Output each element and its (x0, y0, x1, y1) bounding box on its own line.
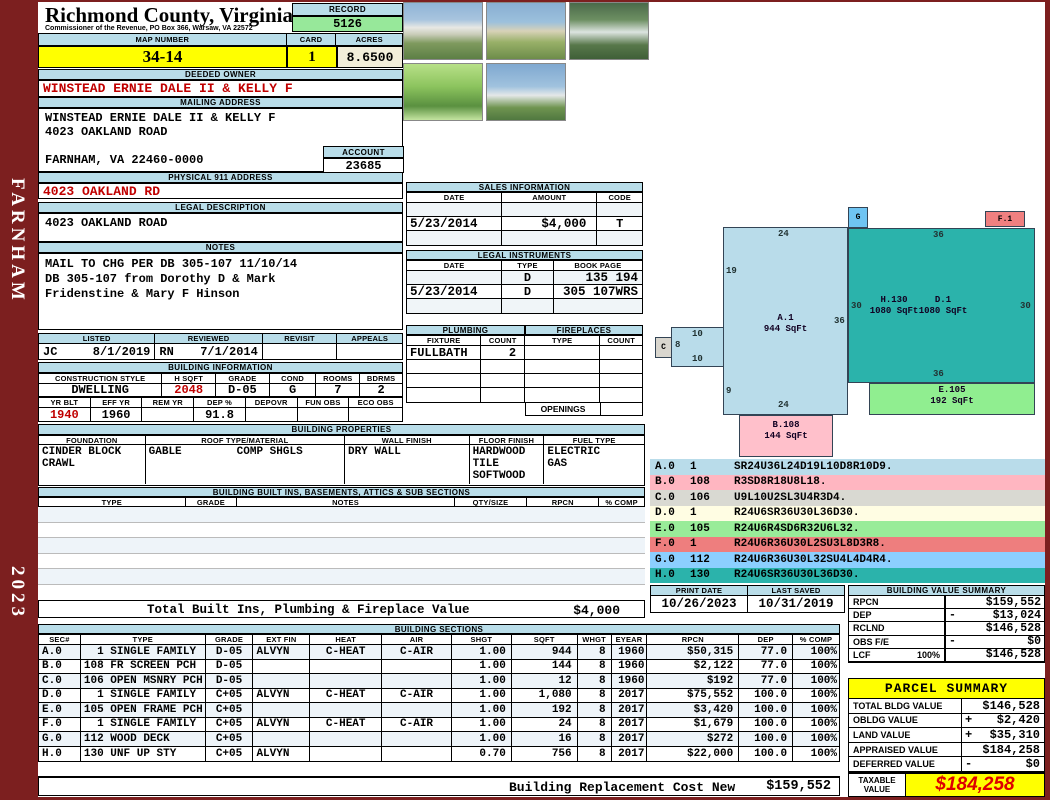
built-in-notes-label: NOTES (237, 498, 454, 506)
fireplace-count-value (600, 346, 642, 359)
dim-h-bottom: 36 (933, 369, 944, 379)
fixture-value (407, 374, 481, 387)
section-dep: 100.0 (739, 689, 793, 703)
sales-information-title: SALES INFORMATION (406, 182, 643, 192)
built-in-type-label: TYPE (39, 498, 186, 506)
foundation-label: FOUNDATION (39, 436, 146, 444)
legend-code: C.0 (650, 492, 690, 504)
section-shgt: 1.00 (452, 689, 512, 703)
section-id: F.0 (39, 718, 81, 732)
value-summary-amount: $159,552 (960, 596, 1044, 609)
section-shgt: 0.70 (452, 747, 512, 762)
acres-label: ACRES (336, 34, 402, 45)
remyr-label: REM YR (142, 398, 194, 407)
built-in-rpcn-label: RPCN (527, 498, 599, 506)
parcel-summary-label: TOTAL BLDG VALUE (849, 699, 961, 713)
replacement-cost-value: $159,552 (766, 779, 831, 794)
legend-vector: R24U6R36U30L32SU4L4D4R4. (734, 554, 1045, 566)
ecoobs-label: ECO OBS (349, 398, 402, 407)
building-info-header-2: YR BLT EFF YR REM YR DEP % DEPOVR FUN OB… (38, 397, 403, 408)
parcel-summary-amount: $184,258 (976, 743, 1044, 757)
section-shgt: 1.00 (452, 660, 512, 674)
built-ins-title: BUILDING BUILT INS, BASEMENTS, ATTICS & … (38, 487, 645, 497)
section-type: 1 SINGLE FAMILY (81, 718, 206, 732)
hsqft-value: 2048 (162, 384, 216, 396)
effyr-value: 1960 (91, 408, 143, 421)
fireplace-type-value (525, 360, 600, 373)
dates-header: PRINT DATE LAST SAVED (650, 585, 845, 596)
funobs-value (298, 408, 350, 421)
property-photo-1 (403, 2, 483, 60)
section-extfin: ALVYN (253, 645, 310, 659)
section-dep: 100.0 (739, 718, 793, 732)
parcel-summary-sign: - (962, 757, 976, 771)
section-sqft: 1,080 (512, 689, 578, 703)
parcel-summary-row: APPRAISED VALUE $184,258 (849, 743, 1044, 758)
section-sqft: 24 (512, 718, 578, 732)
section-id: H.0 (39, 747, 81, 762)
parcel-summary-row: OBLDG VALUE +$2,420 (849, 714, 1044, 729)
dim-notch-top: 10 (692, 329, 703, 339)
section-extfin (253, 703, 310, 717)
openings-label: OPENINGS (525, 402, 601, 416)
section-heat (310, 747, 382, 762)
cond-label: COND (270, 374, 317, 383)
sales-date-label: DATE (407, 193, 502, 202)
legal-instrument-row: 5/23/2014 D 305 107WRS (407, 285, 642, 299)
legend-code: F.0 (650, 538, 690, 550)
section-heat (310, 732, 382, 746)
section-heat (310, 703, 382, 717)
fireplace-count-value (600, 374, 642, 387)
section-comp: 100% (793, 674, 839, 688)
legend-row: H.0 130 R24U6SR36U30L36D30. (650, 568, 1045, 584)
fireplace-count-label: COUNT (600, 336, 642, 345)
section-whgt: 8 (578, 689, 612, 703)
section-eyear: 2017 (612, 703, 648, 717)
dim-h-top: 36 (933, 230, 944, 240)
construction-style-value: DWELLING (39, 384, 162, 396)
notes-line-3: Fridenstine & Mary F Hinson (45, 287, 239, 301)
fixture-value (407, 388, 481, 402)
section-rpcn: $3,420 (647, 703, 739, 717)
section-heat: C-HEAT (310, 718, 382, 732)
legend-row: F.0 1 R24U6R36U30L2SU3L8D3R8. (650, 537, 1045, 553)
instrument-book-page: 305 107WRS (554, 285, 642, 298)
sale-code: T (597, 217, 642, 230)
legend-code: G.0 (650, 554, 690, 566)
building-section-row: H.0 130 UNF UP STY C+05 ALVYN 0.70 756 8… (39, 747, 839, 762)
plumbing-row (407, 374, 642, 388)
yrblt-value: 1940 (39, 408, 91, 421)
value-summary-row: DEP -$13,024 (849, 609, 1044, 622)
revisit-label: REVISIT (263, 334, 338, 343)
section-whgt: 8 (578, 660, 612, 674)
parcel-summary-sign: + (962, 713, 976, 727)
section-dep: 77.0 (739, 674, 793, 688)
built-in-comp-label: % COMP (599, 498, 644, 506)
legal-description-block: 4023 OAKLAND ROAD (38, 213, 403, 242)
building-value-summary-rows: RPCN $159,552 DEP -$13,024 RCLND $146,52… (848, 596, 1045, 663)
parcel-summary-rows: TOTAL BLDG VALUE $146,528 OBLDG VALUE +$… (848, 699, 1045, 773)
grade-value: D-05 (216, 384, 270, 396)
value-summary-label: RPCN (853, 597, 879, 607)
section-dep: 100.0 (739, 703, 793, 717)
instrument-book-label: BOOK PAGE (554, 261, 642, 270)
parcel-summary-amount: $35,310 (976, 728, 1044, 742)
tax-year-sidebar: 2023 (6, 566, 28, 646)
legend-vector: R24U6R4SD6R32U6L32. (734, 523, 1045, 535)
parcel-summary-label: OBLDG VALUE (849, 714, 961, 728)
sketch-label-d: D.11080 SqFt (903, 295, 983, 317)
value-summary-label: DEP (853, 610, 872, 620)
parcel-summary-label: DEFERRED VALUE (849, 757, 961, 771)
appeals-value (337, 344, 402, 359)
plumbing-title: PLUMBING (406, 325, 525, 335)
legend-qty: 130 (690, 569, 734, 581)
instrument-type-label: TYPE (502, 261, 554, 270)
section-grade: C+05 (206, 703, 254, 717)
sale-amount (502, 231, 597, 245)
building-info-values-1: DWELLING 2048 D-05 G 7 2 (38, 384, 403, 397)
legend-vector: R24U6SR36U30L36D30. (734, 507, 1045, 519)
openings-row: OPENINGS (525, 402, 643, 416)
sketch-label-b: B.108144 SqFt (739, 420, 833, 442)
sales-row (407, 231, 642, 245)
section-type: 105 OPEN FRAME PCH (81, 703, 206, 717)
cond-value: G (270, 384, 317, 396)
sales-header: DATE AMOUNT CODE (406, 192, 643, 203)
dim-notch-bottom: 10 (692, 354, 703, 364)
built-ins-empty-rows (38, 507, 645, 600)
value-summary-sign: - (946, 635, 960, 648)
section-eyear: 1960 (612, 674, 648, 688)
map-card-acres-values: 34-14 1 8.6500 (38, 46, 403, 68)
remyr-value (142, 408, 194, 421)
fixture-value: FULLBATH (407, 346, 481, 359)
parcel-summary-label: APPRAISED VALUE (849, 743, 961, 757)
deeded-owner-value: WINSTEAD ERNIE DALE II & KELLY F (38, 80, 403, 97)
value-summary-row: RCLND $146,528 (849, 622, 1044, 635)
legend-row: C.0 106 U9L10U2SL3U4R3D4. (650, 490, 1045, 506)
section-dep: 77.0 (739, 645, 793, 659)
whgt-label: WHGT (578, 635, 612, 644)
legal-instruments-header: DATE TYPE BOOK PAGE (406, 260, 643, 271)
value-summary-row: LCF100% $146,528 (849, 649, 1044, 662)
listed-date: 8/1/2019 (93, 345, 151, 359)
openings-value (601, 402, 643, 416)
account-label: ACCOUNT (323, 146, 404, 158)
section-grade: C+05 (206, 747, 254, 762)
fireplace-count-value (600, 388, 642, 402)
rooms-label: ROOMS (316, 374, 360, 383)
parcel-summary-amount: $0 (976, 757, 1044, 771)
print-date-label: PRINT DATE (651, 586, 748, 595)
section-shgt: 1.00 (452, 703, 512, 717)
value-summary-label: LCF (853, 650, 871, 660)
building-section-row: C.0 106 OPEN MSNRY PCH D-05 1.00 12 8 19… (39, 674, 839, 689)
section-shgt: 1.00 (452, 718, 512, 732)
record-label: RECORD (292, 3, 403, 16)
value-summary-amount: $13,024 (960, 609, 1044, 622)
value-summary-amount: $146,528 (960, 622, 1044, 635)
section-id: C.0 (39, 674, 81, 688)
property-record-card: FARNHAM 2023 Richmond County, Virginia C… (0, 0, 1050, 800)
section-eyear: 2017 (612, 689, 648, 703)
section-whgt: 8 (578, 703, 612, 717)
value-summary-pct: 100% (917, 650, 940, 660)
effyr-label: EFF YR (91, 398, 143, 407)
section-id: G.0 (39, 732, 81, 746)
plumbing-row (407, 360, 642, 374)
legend-vector: SR24U36L24D19L10D8R10D9. (734, 461, 1045, 473)
section-type: 1 SINGLE FAMILY (81, 689, 206, 703)
section-whgt: 8 (578, 645, 612, 659)
building-info-values-2: 1940 1960 91.8 (38, 408, 403, 422)
roof-label: ROOF TYPE/MATERIAL (146, 436, 345, 444)
last-saved-value: 10/31/2019 (748, 596, 844, 612)
record-value: 5126 (292, 16, 403, 32)
sale-amount: $4,000 (502, 217, 597, 230)
parcel-summary-sign: + (962, 728, 976, 742)
fireplace-count-value (600, 360, 642, 373)
type-label: TYPE (81, 635, 206, 644)
map-number-label: MAP NUMBER (39, 34, 287, 45)
section-comp: 100% (793, 732, 839, 746)
instrument-date-label: DATE (407, 261, 502, 270)
fireplace-type-value (525, 388, 600, 402)
section-extfin (253, 660, 310, 674)
print-date-value: 10/26/2023 (651, 596, 748, 612)
parcel-summary-title: PARCEL SUMMARY (848, 678, 1045, 699)
property-photo-3 (569, 2, 649, 60)
section-sqft: 12 (512, 674, 578, 688)
section-extfin: ALVYN (253, 718, 310, 732)
property-photo-2 (486, 2, 566, 60)
building-section-row: A.0 1 SINGLE FAMILY D-05 ALVYN C-HEAT C-… (39, 645, 839, 660)
fixture-count-value (481, 388, 525, 402)
section-comp: 100% (793, 747, 839, 762)
building-section-row: G.0 112 WOOD DECK C+05 1.00 16 8 2017 $2… (39, 732, 839, 747)
section-air (382, 703, 452, 717)
dim-h-left: 30 (851, 301, 862, 311)
dim-a-bottom: 24 (778, 400, 789, 410)
sqft-label: SQFT (512, 635, 578, 644)
section-grade: D-05 (206, 645, 254, 659)
sketch-section-c: C (655, 337, 672, 358)
instrument-date: 5/23/2014 (407, 285, 502, 298)
section-sqft: 192 (512, 703, 578, 717)
air-label: AIR (382, 635, 452, 644)
replacement-cost-label: Building Replacement Cost New (509, 780, 735, 795)
fixture-value (407, 360, 481, 373)
instrument-book-page: 135 194 (554, 271, 642, 284)
value-summary-sign: - (946, 609, 960, 622)
value-summary-label: RCLND (853, 623, 885, 633)
grade-col-label: GRADE (206, 635, 254, 644)
fixture-count-value (481, 374, 525, 387)
dep-col-label: DEP (739, 635, 793, 644)
dim-notch-left: 8 (675, 340, 680, 350)
section-rpcn: $1,679 (647, 718, 739, 732)
reviewed-label: REVIEWED (155, 334, 262, 343)
ecoobs-value (349, 408, 402, 421)
property-photo-5 (486, 63, 566, 121)
section-shgt: 1.00 (452, 674, 512, 688)
built-in-qty-label: QTY/SIZE (455, 498, 528, 506)
section-type: 112 WOOD DECK (81, 732, 206, 746)
built-ins-header: TYPE GRADE NOTES QTY/SIZE RPCN % COMP (38, 497, 645, 507)
section-heat (310, 674, 382, 688)
value-summary-row: OBS F/E -$0 (849, 636, 1044, 649)
sales-amount-label: AMOUNT (502, 193, 597, 202)
built-ins-total-row: Total Built Ins, Plumbing & Fireplace Va… (38, 600, 645, 618)
legend-row: A.0 1 SR24U36L24D19L10D8R10D9. (650, 459, 1045, 475)
legend-qty: 1 (690, 507, 734, 519)
section-whgt: 8 (578, 732, 612, 746)
last-saved-label: LAST SAVED (748, 586, 844, 595)
physical-address-value: 4023 OAKLAND RD (38, 183, 403, 199)
deeded-owner-label: DEEDED OWNER (38, 69, 403, 80)
notes-line-2: DB 305-107 from Dorothy D & Mark (45, 272, 275, 286)
legend-qty: 1 (690, 538, 734, 550)
fuel-type-label: FUEL TYPE (544, 436, 644, 444)
section-comp: 100% (793, 689, 839, 703)
section-rpcn: $75,552 (647, 689, 739, 703)
dim-a-left: 19 (726, 266, 737, 276)
grade-label: GRADE (216, 374, 270, 383)
construction-style-label: CONSTRUCTION STYLE (39, 374, 162, 383)
map-card-acres-header: MAP NUMBER CARD ACRES (38, 33, 403, 46)
mailing-line-1: WINSTEAD ERNIE DALE II & KELLY F (45, 111, 275, 125)
legal-instrument-row (407, 299, 642, 313)
value-summary-amount: $0 (960, 635, 1044, 648)
fixture-count-value (481, 360, 525, 373)
section-whgt: 8 (578, 747, 612, 762)
heat-label: HEAT (310, 635, 382, 644)
section-heat: C-HEAT (310, 645, 382, 659)
account-value: 23685 (323, 158, 404, 173)
instrument-book-page (554, 299, 642, 313)
dim-a-right: 36 (834, 316, 845, 326)
sale-amount (502, 203, 597, 216)
fireplace-type-value (525, 374, 600, 387)
section-grade: D-05 (206, 660, 254, 674)
section-air: C-AIR (382, 645, 452, 659)
section-dep: 77.0 (739, 660, 793, 674)
card-label: CARD (287, 34, 337, 45)
section-id: B.0 (39, 660, 81, 674)
legend-qty: 105 (690, 523, 734, 535)
mailing-address-label: MAILING ADDRESS (38, 97, 403, 108)
value-summary-amount: $146,528 (960, 648, 1044, 661)
reviewed-by: RN (159, 345, 173, 359)
sketch-label-e: E.105192 SqFt (869, 385, 1035, 407)
fireplaces-title: FIREPLACES (525, 325, 643, 335)
section-rpcn: $272 (647, 732, 739, 746)
eyear-label: EYEAR (612, 635, 648, 644)
legal-description-value: 4023 OAKLAND ROAD (45, 216, 167, 230)
funobs-label: FUN OBS (298, 398, 350, 407)
fixture-count-value: 2 (481, 346, 525, 359)
legend-vector: R24U6SR36U30L36D30. (734, 569, 1045, 581)
depovr-label: DEPOVR (246, 398, 298, 407)
sketch-label-a: A.1944 SqFt (723, 313, 848, 335)
legal-instruments-title: LEGAL INSTRUMENTS (406, 250, 643, 260)
built-in-grade-label: GRADE (186, 498, 238, 506)
built-ins-total-value: $4,000 (573, 603, 620, 618)
section-air (382, 732, 452, 746)
section-eyear: 1960 (612, 660, 648, 674)
section-type: 108 FR SCREEN PCH (81, 660, 206, 674)
section-air (382, 674, 452, 688)
taxable-value-amount: $184,258 (906, 774, 1044, 796)
dep-label: DEP % (194, 398, 246, 407)
section-grade: C+05 (206, 689, 254, 703)
section-type: 130 UNF UP STY (81, 747, 206, 762)
section-extfin (253, 674, 310, 688)
hsqft-label: H SQFT (162, 374, 216, 383)
mailing-line-3: FARNHAM, VA 22460-0000 (45, 153, 203, 167)
building-properties-values: CINDER BLOCK CRAWL GABLE COMP SHGLS DRY … (38, 445, 645, 486)
sales-row: 5/23/2014 $4,000 T (407, 217, 642, 231)
section-air: C-AIR (382, 689, 452, 703)
section-comp: 100% (793, 645, 839, 659)
building-properties-title: BUILDING PROPERTIES (38, 424, 645, 435)
extfin-label: EXT FIN (253, 635, 310, 644)
section-extfin (253, 732, 310, 746)
legal-instrument-row: D 135 194 (407, 271, 642, 285)
replacement-cost-row: Building Replacement Cost New $159,552 (38, 776, 840, 796)
listed-by: JC (43, 345, 57, 359)
physical-address-label: PHYSICAL 911 ADDRESS (38, 172, 403, 183)
legal-instruments-rows: D 135 194 5/23/2014 D 305 107WRS (406, 271, 643, 314)
fixture-label: FIXTURE (407, 336, 481, 345)
mailing-line-2: 4023 OAKLAND ROAD (45, 125, 167, 139)
dep-value: 91.8 (194, 408, 246, 421)
legend-row: B.0 108 R3SD8R18U8L18. (650, 475, 1045, 491)
legend-code: D.0 (650, 507, 690, 519)
parcel-summary-row: LAND VALUE +$35,310 (849, 728, 1044, 743)
section-air (382, 747, 452, 762)
section-dep: 100.0 (739, 747, 793, 762)
legend-code: A.0 (650, 461, 690, 473)
dim-a-lower-left: 9 (726, 386, 731, 396)
plumbing-rows: FULLBATH 2 (406, 346, 643, 403)
section-comp: 100% (793, 703, 839, 717)
rpcn-col-label: RPCN (647, 635, 739, 644)
legend-row: E.0 105 R24U6R4SD6R32U6L32. (650, 521, 1045, 537)
shgt-label: SHGT (452, 635, 512, 644)
listed-label: LISTED (39, 334, 155, 343)
yrblt-label: YR BLT (39, 398, 91, 407)
section-id: A.0 (39, 645, 81, 659)
legend-vector: R3SD8R18U8L18. (734, 476, 1045, 488)
fireplace-type-label: TYPE (525, 336, 600, 345)
wall-finish-label: WALL FINISH (345, 436, 470, 444)
legend-code: B.0 (650, 476, 690, 488)
district-name-sidebar: FARNHAM (6, 178, 28, 348)
building-section-row: D.0 1 SINGLE FAMILY C+05 ALVYN C-HEAT C-… (39, 689, 839, 704)
sale-code (597, 231, 642, 245)
plumbing-row: FULLBATH 2 (407, 346, 642, 360)
county-subtitle: Commissioner of the Revenue, PO Box 366,… (45, 25, 305, 32)
legend-row: D.0 1 R24U6SR36U30L36D30. (650, 506, 1045, 522)
dim-h-right: 30 (1020, 301, 1031, 311)
legend-qty: 1 (690, 461, 734, 473)
section-whgt: 8 (578, 674, 612, 688)
instrument-date (407, 299, 502, 313)
